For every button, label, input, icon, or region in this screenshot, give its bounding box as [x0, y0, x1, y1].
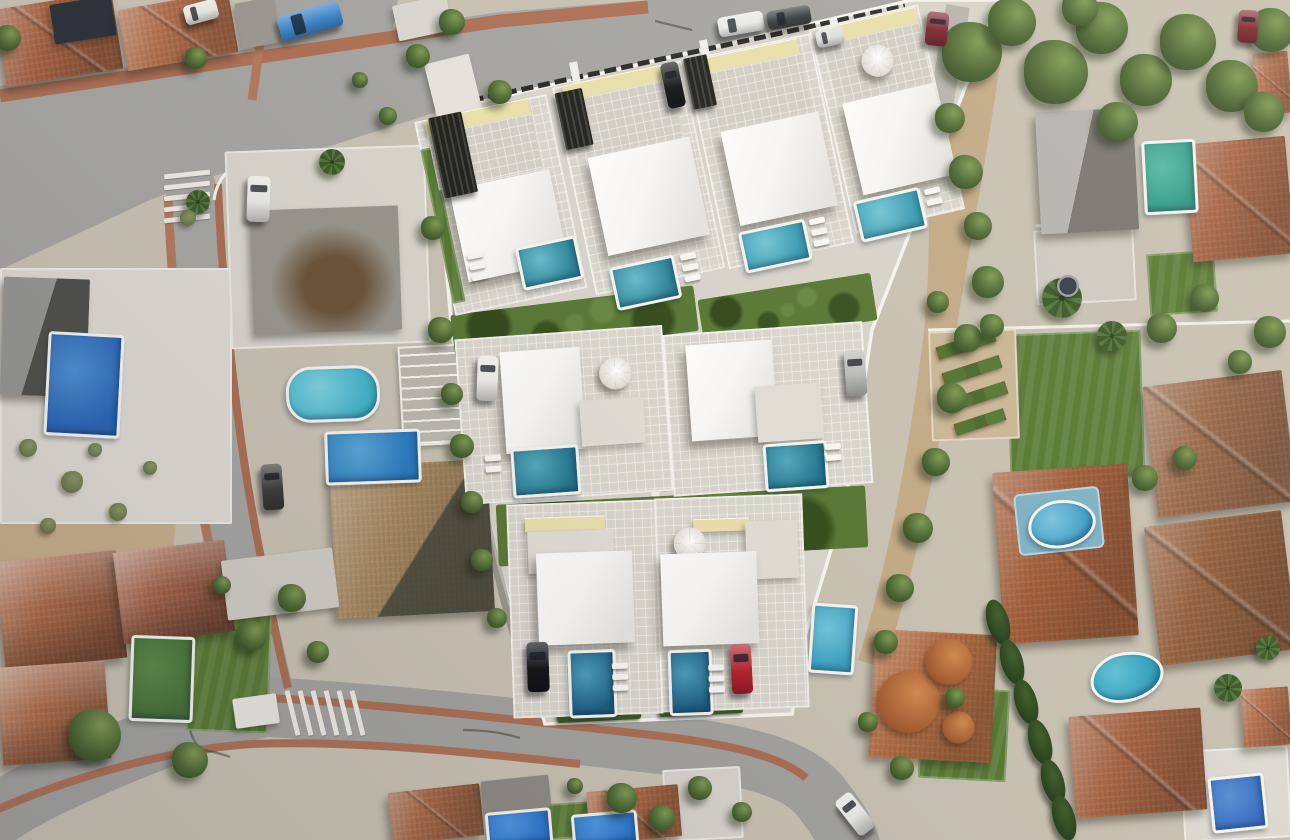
tree-canopy — [922, 448, 950, 476]
house-roof — [1142, 370, 1290, 518]
tree-canopy — [964, 212, 992, 240]
tree-canopy — [903, 513, 933, 543]
tree-canopy — [487, 608, 507, 628]
tree-canopy — [1132, 465, 1158, 491]
house-roof — [1240, 686, 1290, 747]
tree-canopy — [607, 783, 637, 813]
car-windshield — [529, 652, 545, 661]
car — [730, 643, 754, 694]
sun-lounger — [825, 454, 841, 461]
swimming-pool — [1086, 646, 1168, 708]
tree-canopy — [886, 574, 914, 602]
tree-canopy — [649, 805, 675, 831]
villa-white-roof — [587, 137, 710, 256]
crosswalk-stripe — [164, 170, 210, 180]
tree-canopy — [471, 549, 493, 571]
tree-canopy — [945, 688, 965, 708]
tree-canopy — [421, 216, 445, 240]
scene-objects — [0, 0, 1290, 840]
swimming-pool — [43, 331, 124, 439]
crosswalk-stripe — [164, 181, 210, 191]
house-roof — [1183, 136, 1290, 262]
bush-canopy — [180, 210, 196, 226]
car-windshield — [733, 654, 748, 663]
car — [834, 791, 877, 838]
tree-canopy — [954, 324, 982, 352]
car-windshield — [821, 32, 828, 45]
tree-canopy — [172, 742, 208, 778]
car-windshield — [1241, 17, 1255, 23]
tree-canopy — [927, 291, 949, 313]
tree-canopy — [1098, 102, 1138, 142]
tree-canopy — [935, 103, 965, 133]
sun-lounger — [612, 674, 628, 681]
swimming-pool — [324, 428, 422, 485]
tree-canopy — [1120, 54, 1172, 106]
sun-lounger — [485, 455, 501, 462]
tree-canopy — [69, 709, 121, 761]
car-windshield — [841, 799, 856, 813]
car-windshield — [727, 18, 737, 33]
tree-canopy — [567, 778, 583, 794]
tree-canopy — [450, 434, 474, 458]
tree-canopy — [972, 266, 1004, 298]
swimming-pool — [1141, 139, 1199, 216]
swimming-pool — [668, 649, 714, 716]
tree-canopy — [1160, 14, 1216, 70]
tree-canopy — [988, 0, 1036, 46]
villa-cream-parapet — [693, 517, 749, 532]
car — [476, 356, 499, 402]
house-roof — [232, 693, 280, 729]
sun-lounger — [709, 686, 725, 693]
car-windshield — [250, 185, 267, 193]
swimming-pool — [510, 444, 581, 499]
house-roof — [250, 205, 402, 334]
lawn — [1005, 330, 1145, 483]
sun-lounger — [613, 685, 629, 692]
villa-white-roof — [720, 111, 838, 226]
tree-canopy — [461, 491, 483, 513]
swimming-pool — [567, 649, 617, 719]
tree-canopy — [1254, 316, 1286, 348]
car — [260, 463, 284, 510]
tree-canopy — [1024, 40, 1088, 104]
tree-canopy — [185, 47, 207, 69]
car-windshield — [847, 359, 862, 367]
sun-lounger — [708, 664, 724, 671]
car — [1237, 9, 1259, 43]
house-roof — [1069, 708, 1208, 819]
house-roof — [388, 783, 485, 840]
tree-canopy — [1147, 313, 1177, 343]
tree-canopy — [858, 712, 878, 732]
car-windshield — [664, 70, 677, 79]
sun-lounger — [708, 675, 724, 682]
villa-white-roof — [499, 347, 586, 454]
tree-canopy — [937, 383, 967, 413]
house-roof — [117, 0, 238, 71]
tree-canopy — [428, 317, 454, 343]
bush-canopy — [40, 518, 56, 534]
roof-cone-turret — [925, 638, 973, 686]
tree-canopy — [406, 44, 430, 68]
car — [276, 0, 345, 42]
tree-canopy — [352, 72, 368, 88]
roof-cone-turret — [876, 669, 941, 734]
tree-canopy — [890, 756, 914, 780]
sun-lounger — [825, 443, 841, 450]
crosswalk-stripe — [350, 690, 366, 736]
sun-lounger — [485, 465, 501, 472]
car-windshield — [290, 13, 307, 36]
car-windshield — [190, 6, 199, 21]
tree-canopy — [1228, 350, 1252, 374]
palm-canopy — [1256, 636, 1280, 660]
tree-canopy — [949, 155, 983, 189]
car-windshield — [264, 473, 279, 481]
tree-canopy — [488, 80, 512, 104]
house-roof — [221, 547, 339, 620]
tree-canopy — [237, 621, 267, 651]
car-windshield — [776, 12, 786, 26]
trampoline — [1057, 275, 1079, 297]
tree-canopy — [874, 630, 898, 654]
villa-upper-terrace — [754, 382, 824, 442]
swimming-pool — [129, 635, 196, 723]
tree-canopy — [213, 576, 231, 594]
tree-canopy — [732, 802, 752, 822]
tree-canopy — [379, 107, 397, 125]
aerial-photo — [0, 0, 1290, 840]
car — [843, 349, 867, 396]
palm-canopy — [1214, 674, 1242, 702]
swimming-pool — [808, 602, 859, 675]
car — [526, 642, 550, 693]
tree-canopy — [1244, 92, 1284, 132]
villa-white-roof — [660, 551, 759, 646]
swimming-pool — [1207, 772, 1269, 834]
tree-canopy — [439, 9, 465, 35]
tree-canopy — [688, 776, 712, 800]
house-roof — [234, 0, 281, 49]
swimming-pool — [571, 809, 640, 840]
tree-canopy — [307, 641, 329, 663]
swimming-pool — [285, 364, 381, 423]
car — [924, 11, 949, 47]
sun-lounger — [612, 663, 628, 670]
roof-cone-turret — [942, 711, 976, 745]
swimming-pool — [762, 440, 829, 492]
tree-canopy — [980, 314, 1004, 338]
villa-upper-terrace — [579, 396, 646, 446]
swimming-pool — [485, 807, 554, 840]
tree-canopy — [1173, 446, 1197, 470]
car — [246, 176, 271, 223]
tree-canopy — [1191, 284, 1219, 312]
villa-white-roof — [536, 550, 635, 645]
palm-canopy — [319, 149, 345, 175]
car-windshield — [930, 18, 946, 25]
tree-canopy — [278, 584, 306, 612]
new-villa — [663, 321, 874, 497]
tree-canopy — [441, 383, 463, 405]
car-windshield — [480, 365, 495, 373]
palm-canopy — [1097, 321, 1127, 351]
new-villa — [454, 325, 673, 505]
house-roof — [0, 550, 127, 670]
